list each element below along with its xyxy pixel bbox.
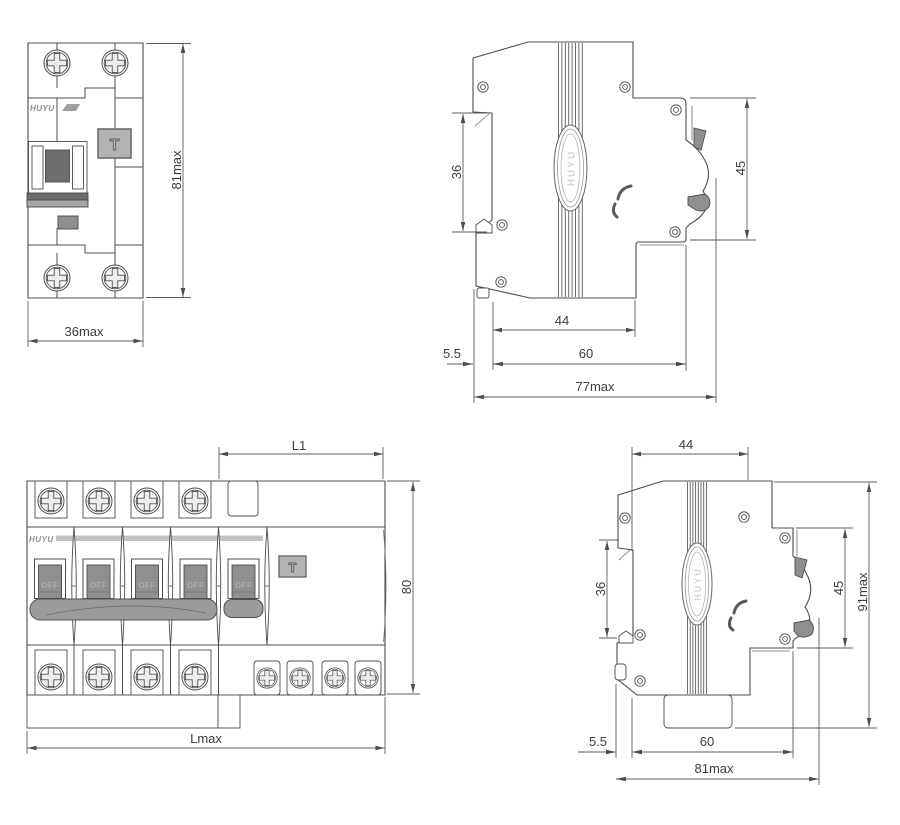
dim-l1-label: L1 xyxy=(292,438,306,453)
toggle-switch xyxy=(35,559,66,599)
dimension-36max: 36max xyxy=(28,301,143,347)
rcd-handle xyxy=(224,600,263,618)
screw-icon xyxy=(102,265,128,291)
screw-icon xyxy=(86,664,112,690)
toggle-switch xyxy=(228,559,259,599)
terminal-window xyxy=(228,481,258,516)
dim-height-label: 91max xyxy=(855,572,870,612)
rivet-icon xyxy=(671,105,681,115)
technical-drawing-circuit-breaker: OFF HUYU T xyxy=(0,0,900,825)
front-view-4pole: HUYU T L1 xyxy=(27,438,420,754)
pole-divider-seam xyxy=(120,527,125,645)
toggle-switch xyxy=(132,559,163,599)
din-clip xyxy=(619,631,633,643)
rivet-icon xyxy=(496,277,506,287)
pole-divider-seam xyxy=(168,527,173,645)
toggle-switch xyxy=(83,559,114,599)
toggle-lever-side xyxy=(694,128,706,150)
screw-icon xyxy=(134,488,160,514)
dim-60-label: 60 xyxy=(579,346,593,361)
screw-icon xyxy=(86,488,112,514)
breaker-body: HUYU xyxy=(615,481,813,728)
screw-icon xyxy=(102,50,128,76)
screw-icon xyxy=(38,664,64,690)
dim-44-label: 44 xyxy=(555,313,569,328)
side-view-top: HUYU 36 xyxy=(443,42,756,403)
screw-icon xyxy=(257,668,277,688)
side-view-bottom: HUYU 44 xyxy=(578,437,877,785)
dim-height-label: 80 xyxy=(399,580,414,594)
din-clip-tab xyxy=(615,664,626,680)
dim-front-label: 45 xyxy=(733,161,748,175)
screw-icon xyxy=(290,668,310,688)
front-view-2pole: HUYU T 81max xyxy=(27,43,191,347)
handle-tie-bar xyxy=(30,599,263,620)
rivet-icon xyxy=(620,513,630,523)
rivet-icon xyxy=(780,533,790,543)
dim-front-label: 45 xyxy=(831,581,846,595)
screw-icon xyxy=(182,488,208,514)
dimension-L1: L1 xyxy=(219,438,383,479)
screw-icon xyxy=(358,668,378,688)
brand-emboss-text: HUYU xyxy=(693,567,703,601)
rivet-icon xyxy=(739,512,749,522)
pole-divider-seam xyxy=(72,527,77,645)
dim-total-label: 81max xyxy=(694,761,734,776)
dim-total-label: 77max xyxy=(575,379,615,394)
dimension-44: 44 xyxy=(493,300,635,370)
rivet-icon xyxy=(478,82,488,92)
test-button-label: T xyxy=(289,560,297,575)
rivet-icon xyxy=(670,227,680,237)
dim-top-label: 44 xyxy=(679,437,693,452)
dim-60-label: 60 xyxy=(700,734,714,749)
pole-divider-seam xyxy=(265,527,270,645)
rivet-icon xyxy=(635,676,645,686)
screw-icon xyxy=(182,664,208,690)
toggle-switch xyxy=(180,559,211,599)
dim-gap-label: 5.5 xyxy=(589,734,607,749)
logo-bar xyxy=(56,536,263,542)
screw-icon xyxy=(325,668,345,688)
dim-gap-label: 5.5 xyxy=(443,346,461,361)
pole-divider-seam xyxy=(216,527,221,645)
test-button: T xyxy=(98,129,131,158)
dim-rail-label: 36 xyxy=(449,165,464,179)
dimension-36: 36 xyxy=(449,113,489,232)
din-clip xyxy=(476,219,492,233)
screw-icon xyxy=(38,488,64,514)
brand-logo-text: HUYU xyxy=(29,535,54,544)
brand-emboss-text: HUYU xyxy=(567,150,578,186)
dimension-80: 80 xyxy=(387,481,420,694)
rivet-icon xyxy=(620,82,630,92)
dimension-36: 36 xyxy=(593,540,619,638)
dimension-81max: 81max xyxy=(146,44,191,298)
rivet-icon xyxy=(635,630,645,640)
dim-total-label: Lmax xyxy=(190,731,222,746)
dim-height-label: 81max xyxy=(169,150,184,190)
din-clip-tab xyxy=(477,288,489,298)
brand-logo-text: HUYU xyxy=(30,104,55,113)
toggle-lever-end xyxy=(794,620,813,637)
test-button: T xyxy=(279,556,306,577)
breaker-body: HUYU xyxy=(473,42,710,298)
test-button-label: T xyxy=(110,137,120,154)
rivet-icon xyxy=(780,634,790,644)
dim-rail-label: 36 xyxy=(593,582,608,596)
bottom-housing xyxy=(664,695,732,728)
screw-icon xyxy=(134,664,160,690)
rivet-icon xyxy=(497,220,507,230)
dim-width-label: 36max xyxy=(64,324,104,339)
screw-icon xyxy=(44,265,70,291)
screw-icon xyxy=(44,50,70,76)
